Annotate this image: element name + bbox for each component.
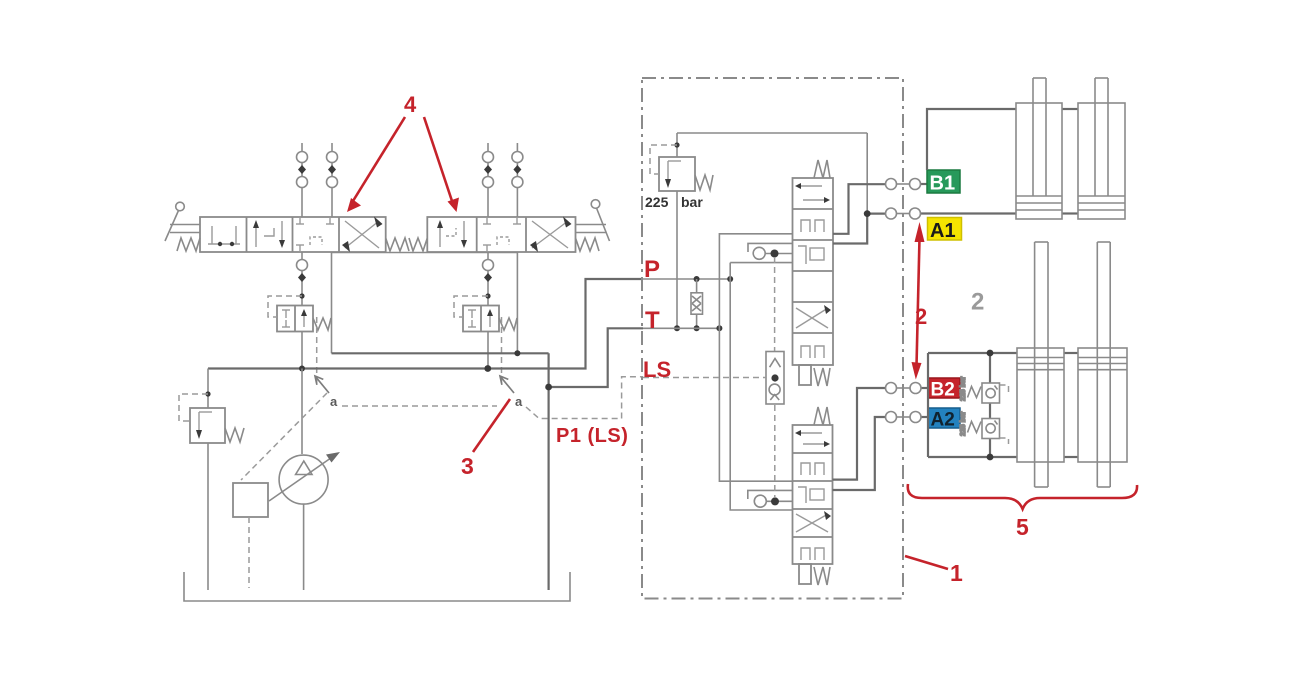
svg-text:225 bar: 225 bar: [960, 376, 967, 401]
svg-text:P: P: [644, 256, 660, 283]
svg-text:T: T: [645, 307, 660, 334]
svg-text:3: 3: [461, 453, 474, 479]
svg-text:4: 4: [404, 92, 417, 117]
svg-text:A1: A1: [930, 220, 956, 242]
svg-text:bar: bar: [681, 194, 703, 210]
svg-text:2: 2: [915, 304, 927, 329]
svg-text:225 bar: 225 bar: [960, 411, 967, 436]
svg-text:P1 (LS): P1 (LS): [556, 425, 628, 447]
svg-text:B2: B2: [931, 380, 955, 401]
svg-text:LS: LS: [643, 357, 671, 382]
svg-text:B1: B1: [930, 173, 956, 195]
svg-text:a: a: [330, 394, 338, 409]
svg-text:A2: A2: [931, 410, 955, 431]
svg-text:2: 2: [971, 289, 984, 316]
svg-text:1: 1: [950, 560, 963, 586]
svg-text:225: 225: [645, 194, 669, 210]
svg-text:a: a: [515, 394, 523, 409]
svg-text:5: 5: [1016, 514, 1029, 540]
